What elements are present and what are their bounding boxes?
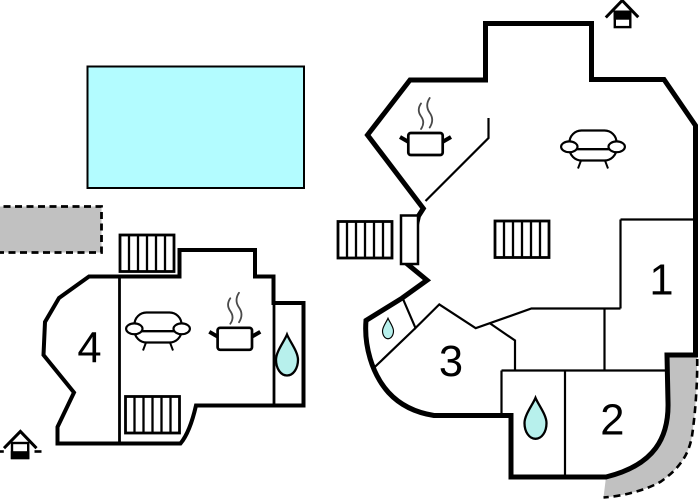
svg-text:4: 4	[77, 325, 101, 373]
svg-text:2: 2	[600, 397, 624, 445]
svg-text:1: 1	[649, 257, 673, 305]
svg-text:3: 3	[439, 338, 463, 386]
